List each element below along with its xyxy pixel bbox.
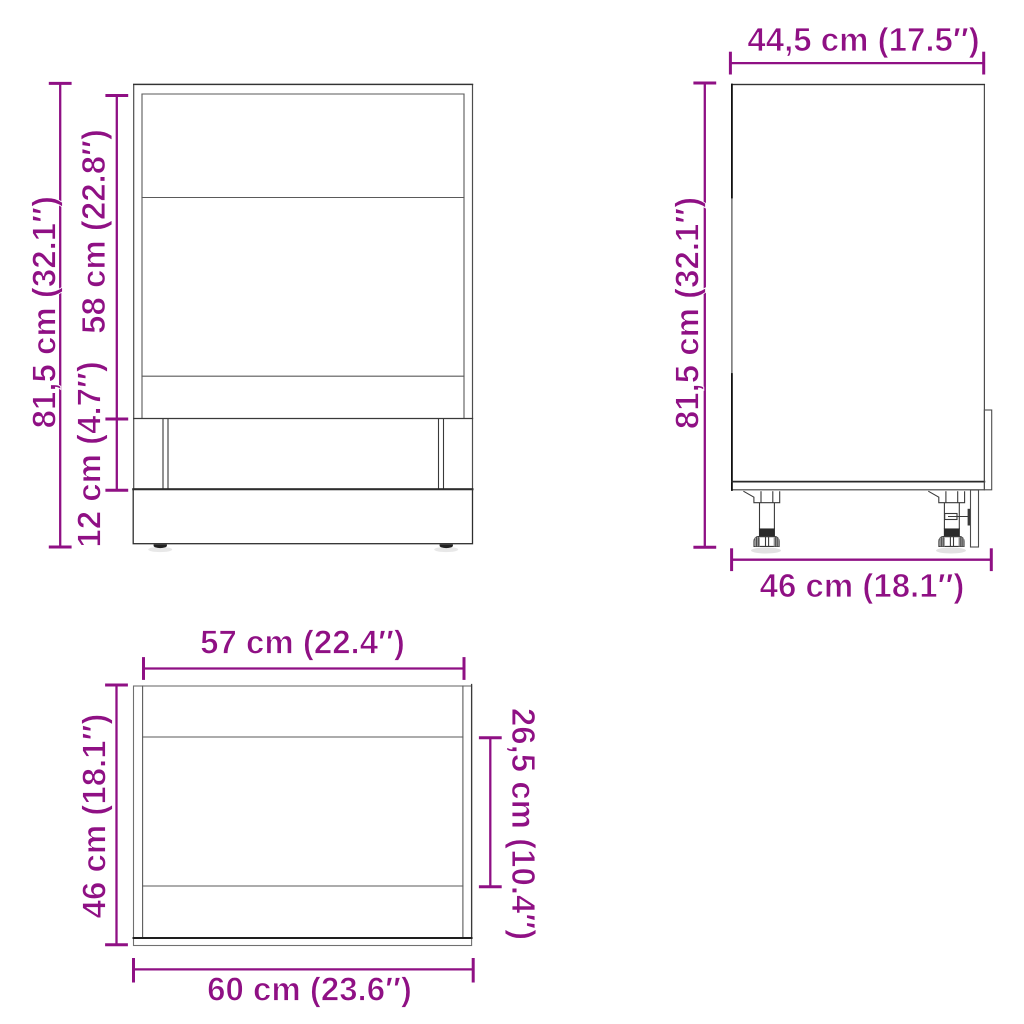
- svg-text:81,5 cm (32.1″): 81,5 cm (32.1″): [669, 197, 706, 429]
- svg-text:58 cm (22.8″): 58 cm (22.8″): [75, 129, 112, 334]
- svg-text:81,5 cm (32.1″): 81,5 cm (32.1″): [26, 196, 63, 428]
- svg-text:26,5 cm (10.4″): 26,5 cm (10.4″): [505, 708, 542, 940]
- svg-text:44,5 cm (17.5″): 44,5 cm (17.5″): [747, 21, 979, 58]
- svg-text:46 cm (18.1″): 46 cm (18.1″): [760, 567, 965, 604]
- svg-text:57 cm (22.4″): 57 cm (22.4″): [200, 624, 405, 661]
- svg-text:46 cm (18.1″): 46 cm (18.1″): [76, 714, 113, 919]
- svg-text:12 cm (4.7″): 12 cm (4.7″): [71, 361, 108, 547]
- svg-text:60 cm (23.6″): 60 cm (23.6″): [207, 971, 412, 1008]
